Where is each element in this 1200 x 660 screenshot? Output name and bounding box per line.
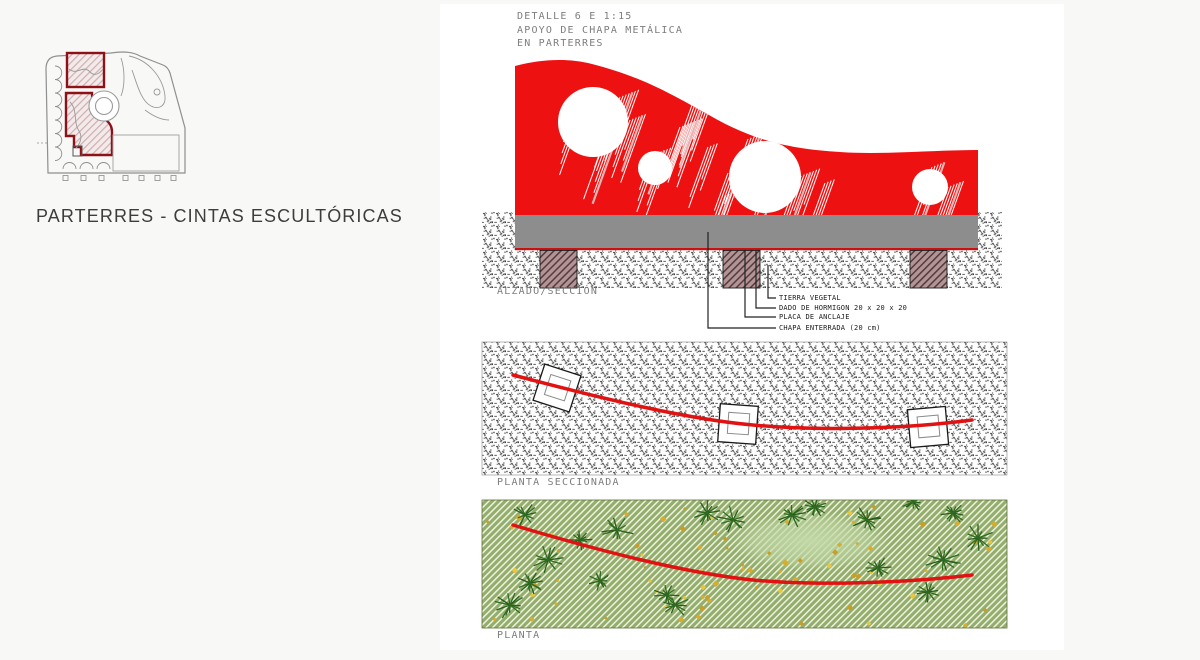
- detail-title-line-2: APOYO DE CHAPA METÁLICA: [517, 24, 683, 38]
- annotation-dado-hormigon: DADO DE HORMIGON 20 x 20 x 20: [779, 304, 907, 312]
- key-plan-scallops-bottom: [63, 162, 110, 169]
- anchor-plate-band: [515, 215, 978, 248]
- page-title: PARTERRES - CINTAS ESCULTÓRICAS: [36, 206, 403, 227]
- key-plan-terrace-rect: [113, 135, 179, 171]
- plan-drawing: [480, 496, 1010, 633]
- ribbon-hole: [729, 141, 801, 213]
- key-plan-dot: [154, 89, 160, 95]
- page: PARTERRES - CINTAS ESCULTÓRICAS DETALLE …: [0, 0, 1200, 660]
- plan-label: PLANTA: [497, 630, 540, 641]
- highlight-area-upper: [67, 53, 104, 87]
- annotation-chapa-enterrada: CHAPA ENTERRADA (20 cm): [779, 324, 881, 332]
- key-plan-thumbnail: [33, 36, 205, 198]
- sectioned-plan-label: PLANTA SECCIONADA: [497, 477, 620, 488]
- detail-title-line-3: EN PARTERRES: [517, 37, 683, 51]
- key-plan-scallops-left: [55, 66, 62, 161]
- annotation-tierra-vegetal: TIERRA VEGETAL: [779, 294, 841, 302]
- key-plan-bed-curve-3: [145, 110, 169, 120]
- fountain-ring-outer: [89, 91, 119, 121]
- detail-title-line-1: DETALLE 6 E 1:15: [517, 10, 683, 24]
- ribbon-hole: [638, 151, 672, 185]
- ribbon-hole: [558, 87, 628, 157]
- elevation-label: ALZADO/SECCIÓN: [497, 286, 598, 297]
- sectioned-plan-drawing: [480, 340, 1010, 480]
- key-plan-bottom-ticks: [63, 176, 176, 181]
- concrete-dado-block: [723, 250, 760, 288]
- detail-title-block: DETALLE 6 E 1:15 APOYO DE CHAPA METÁLICA…: [517, 10, 683, 51]
- buried-sheet-line: [515, 248, 978, 250]
- ribbon-hole: [912, 169, 948, 205]
- concrete-dado-block: [540, 250, 577, 288]
- key-plan-bed-curve-2: [121, 58, 124, 96]
- annotation-placa-anclaje: PLACA DE ANCLAJE: [779, 313, 850, 321]
- concrete-dado-block: [910, 250, 947, 288]
